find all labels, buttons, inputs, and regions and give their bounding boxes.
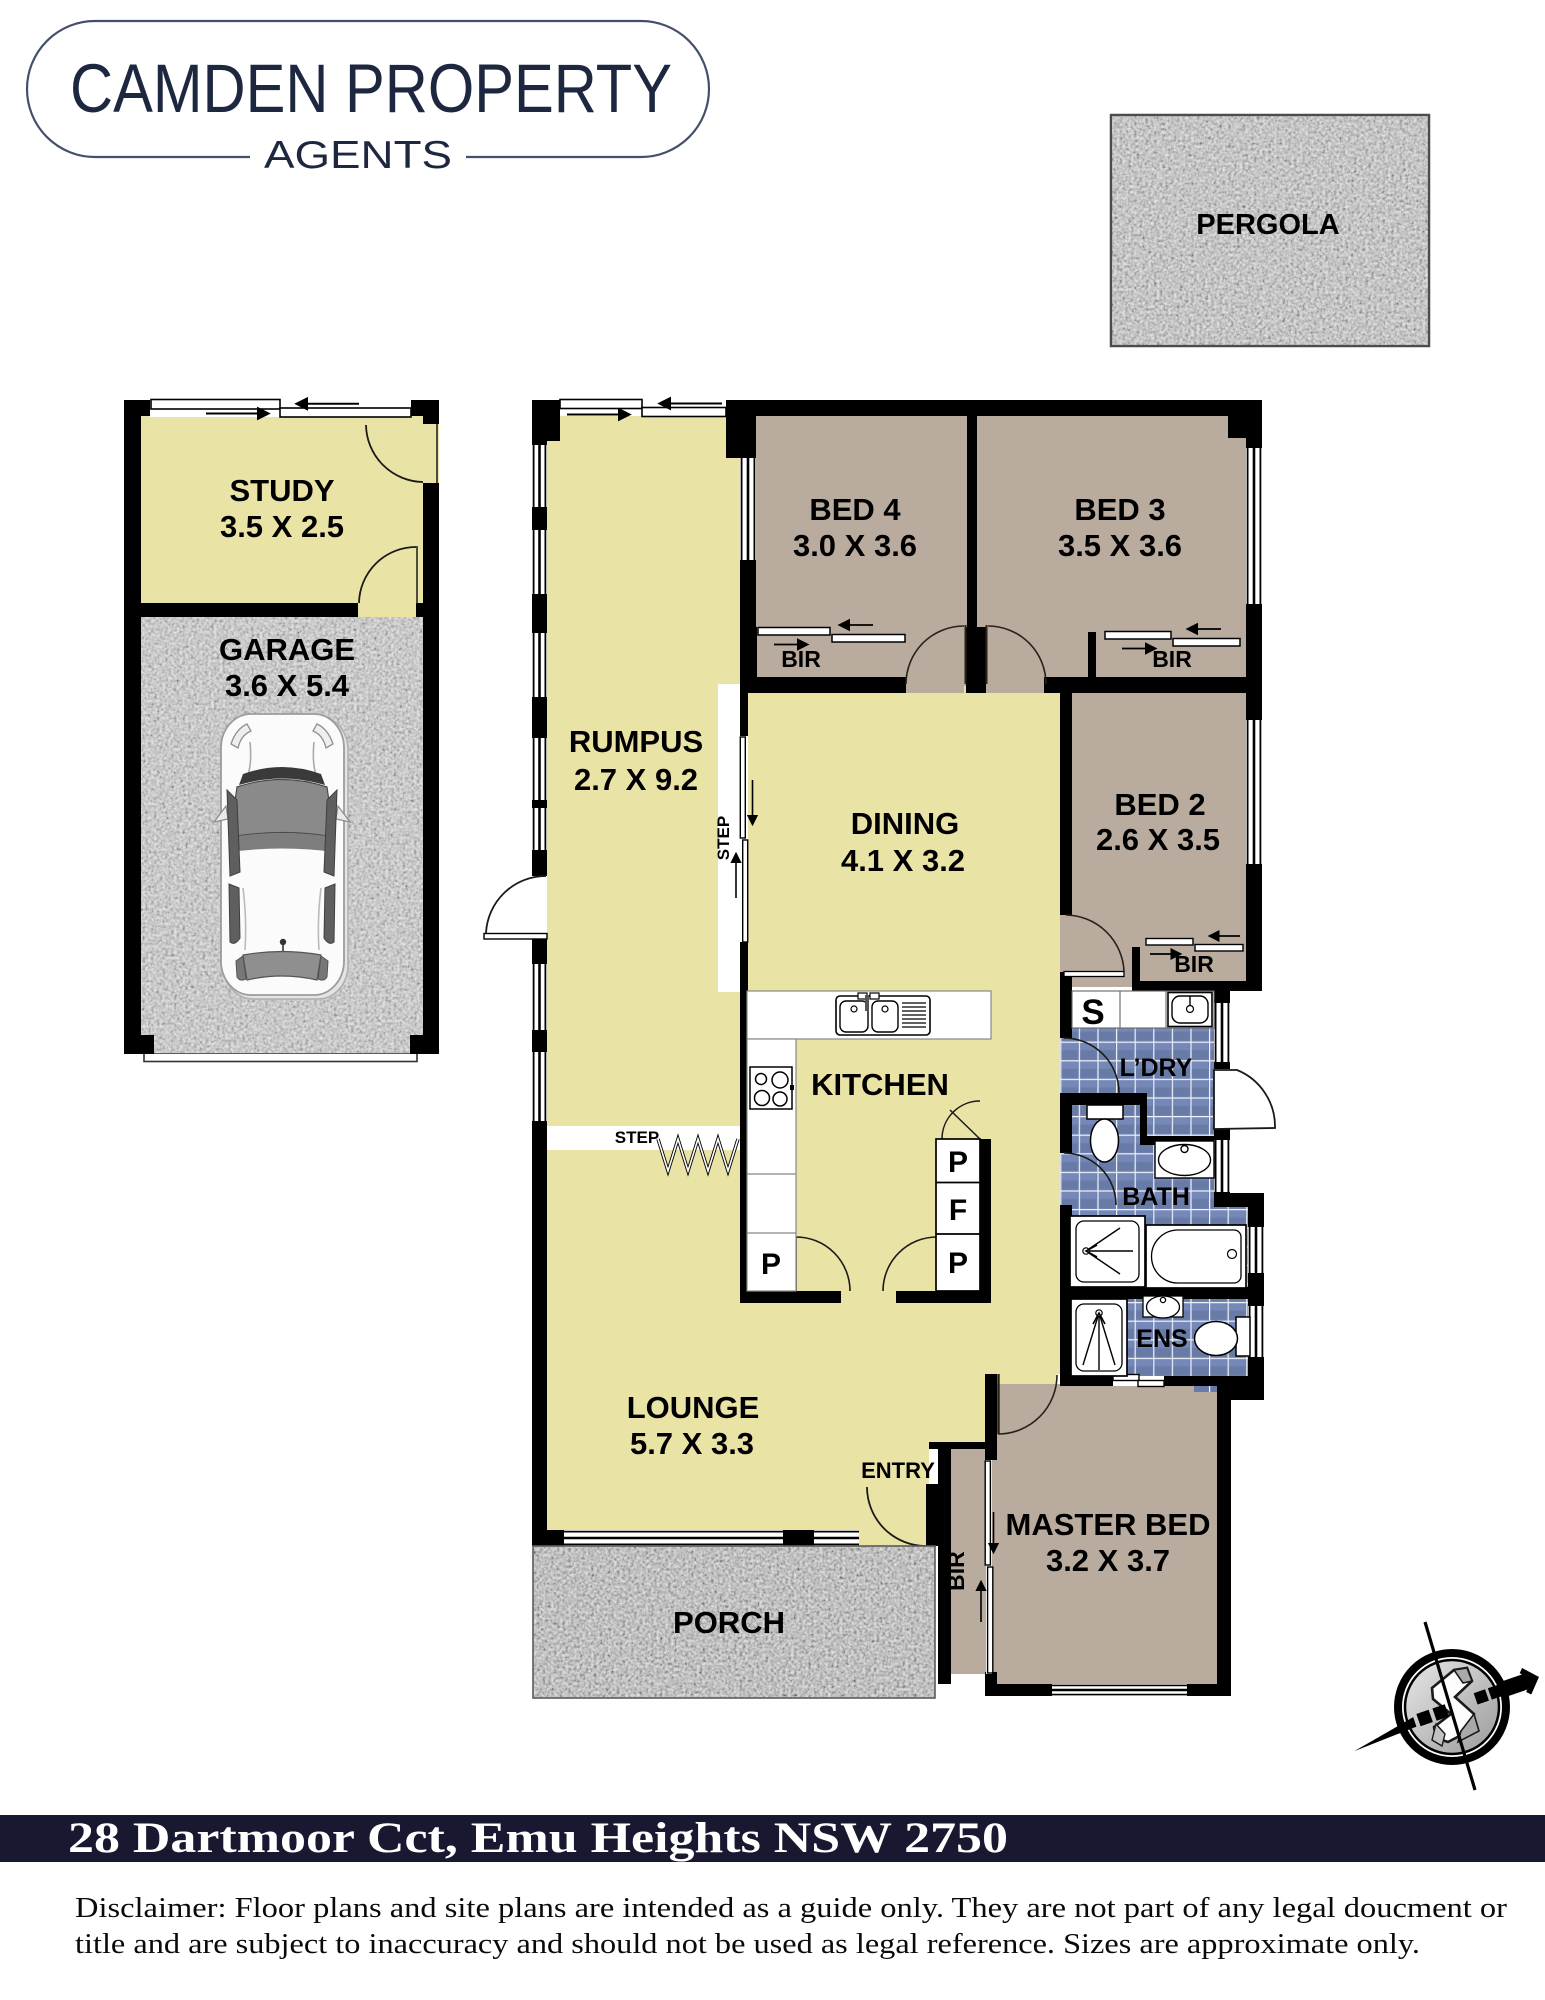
svg-text:PORCH: PORCH <box>673 1605 785 1640</box>
svg-text:4.1 X 3.2: 4.1 X 3.2 <box>841 843 965 878</box>
svg-text:BED 3: BED 3 <box>1074 492 1165 527</box>
svg-text:Disclaimer: Floor plans and si: Disclaimer: Floor plans and site plans a… <box>75 1892 1507 1924</box>
svg-text:BED 4: BED 4 <box>809 492 901 527</box>
svg-text:RUMPUS: RUMPUS <box>569 724 703 759</box>
svg-text:28 Dartmoor Cct, Emu Heights N: 28 Dartmoor Cct, Emu Heights NSW 2750 <box>68 1815 1008 1862</box>
svg-text:DINING: DINING <box>851 806 960 841</box>
svg-text:F: F <box>949 1194 967 1227</box>
svg-text:P: P <box>948 1247 968 1280</box>
svg-text:3.2 X 3.7: 3.2 X 3.7 <box>1046 1543 1170 1578</box>
svg-text:3.5 X 3.6: 3.5 X 3.6 <box>1058 528 1182 563</box>
svg-text:2.6 X 3.5: 2.6 X 3.5 <box>1096 822 1220 857</box>
svg-text:title and are subject to inacc: title and are subject to inaccuracy and … <box>75 1928 1420 1960</box>
svg-text:5.7 X 3.3: 5.7 X 3.3 <box>630 1426 754 1461</box>
svg-text:GARAGE: GARAGE <box>219 632 355 667</box>
svg-text:MASTER BED: MASTER BED <box>1006 1507 1211 1542</box>
svg-text:L’DRY: L’DRY <box>1120 1054 1193 1082</box>
svg-text:KITCHEN: KITCHEN <box>811 1067 949 1102</box>
svg-text:LOUNGE: LOUNGE <box>627 1390 760 1425</box>
svg-text:STEP: STEP <box>714 816 733 860</box>
svg-text:ENS: ENS <box>1136 1325 1187 1353</box>
svg-text:BIR: BIR <box>1174 951 1214 977</box>
svg-text:BATH: BATH <box>1122 1183 1190 1211</box>
svg-text:P: P <box>948 1146 968 1179</box>
svg-text:BIR: BIR <box>781 646 821 672</box>
svg-text:3.0 X 3.6: 3.0 X 3.6 <box>793 528 917 563</box>
svg-text:ENTRY: ENTRY <box>861 1458 935 1483</box>
svg-text:3.5 X 2.5: 3.5 X 2.5 <box>220 509 344 544</box>
svg-text:S: S <box>1081 993 1104 1032</box>
svg-text:AGENTS: AGENTS <box>264 134 452 177</box>
svg-text:STUDY: STUDY <box>229 473 334 508</box>
svg-text:BIR: BIR <box>1152 646 1192 672</box>
svg-text:3.6 X 5.4: 3.6 X 5.4 <box>225 668 350 703</box>
svg-text:PERGOLA: PERGOLA <box>1196 209 1339 241</box>
svg-text:BED 2: BED 2 <box>1114 787 1205 822</box>
svg-text:STEP: STEP <box>615 1128 659 1147</box>
svg-text:P: P <box>761 1248 781 1281</box>
svg-text:2.7 X 9.2: 2.7 X 9.2 <box>574 762 698 797</box>
svg-text:BIR: BIR <box>943 1551 969 1591</box>
svg-text:CAMDEN PROPERTY: CAMDEN PROPERTY <box>70 50 672 127</box>
